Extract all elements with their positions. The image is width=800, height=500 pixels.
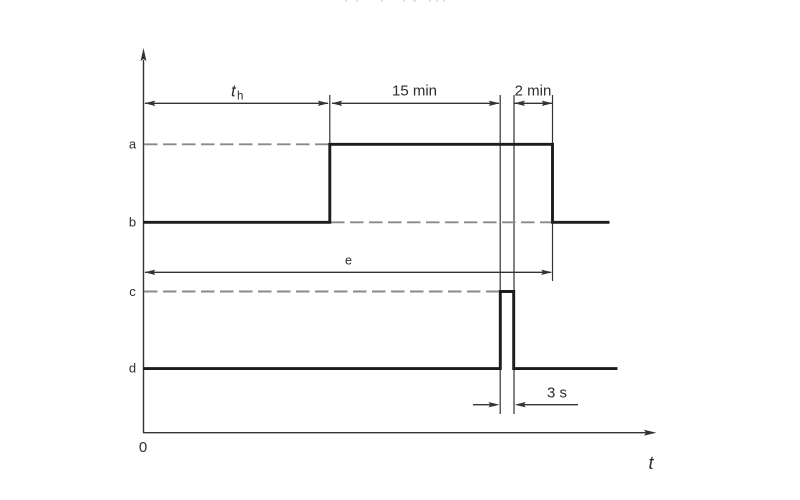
svg-text:3 s: 3 s [547,385,567,402]
svg-text:15 min: 15 min [392,83,437,100]
svg-text:b: b [129,215,136,230]
svg-text:e: e [345,254,352,268]
svg-text:h: h [237,91,243,103]
svg-text:c: c [129,284,136,299]
svg-text:d: d [129,361,136,376]
svg-text:a: a [129,137,137,152]
svg-text:0: 0 [139,439,147,456]
svg-text:2 min: 2 min [515,83,552,100]
